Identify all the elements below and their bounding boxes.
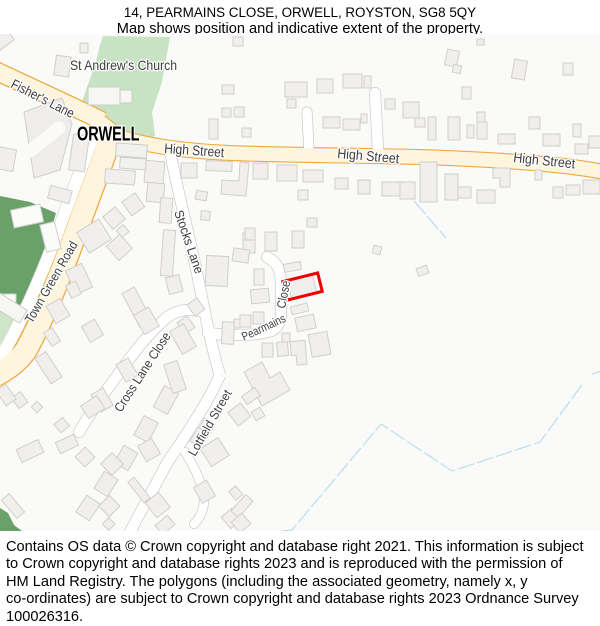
svg-text:St Andrew's Church: St Andrew's Church <box>70 57 177 73</box>
svg-text:ORWELL: ORWELL <box>77 124 140 146</box>
